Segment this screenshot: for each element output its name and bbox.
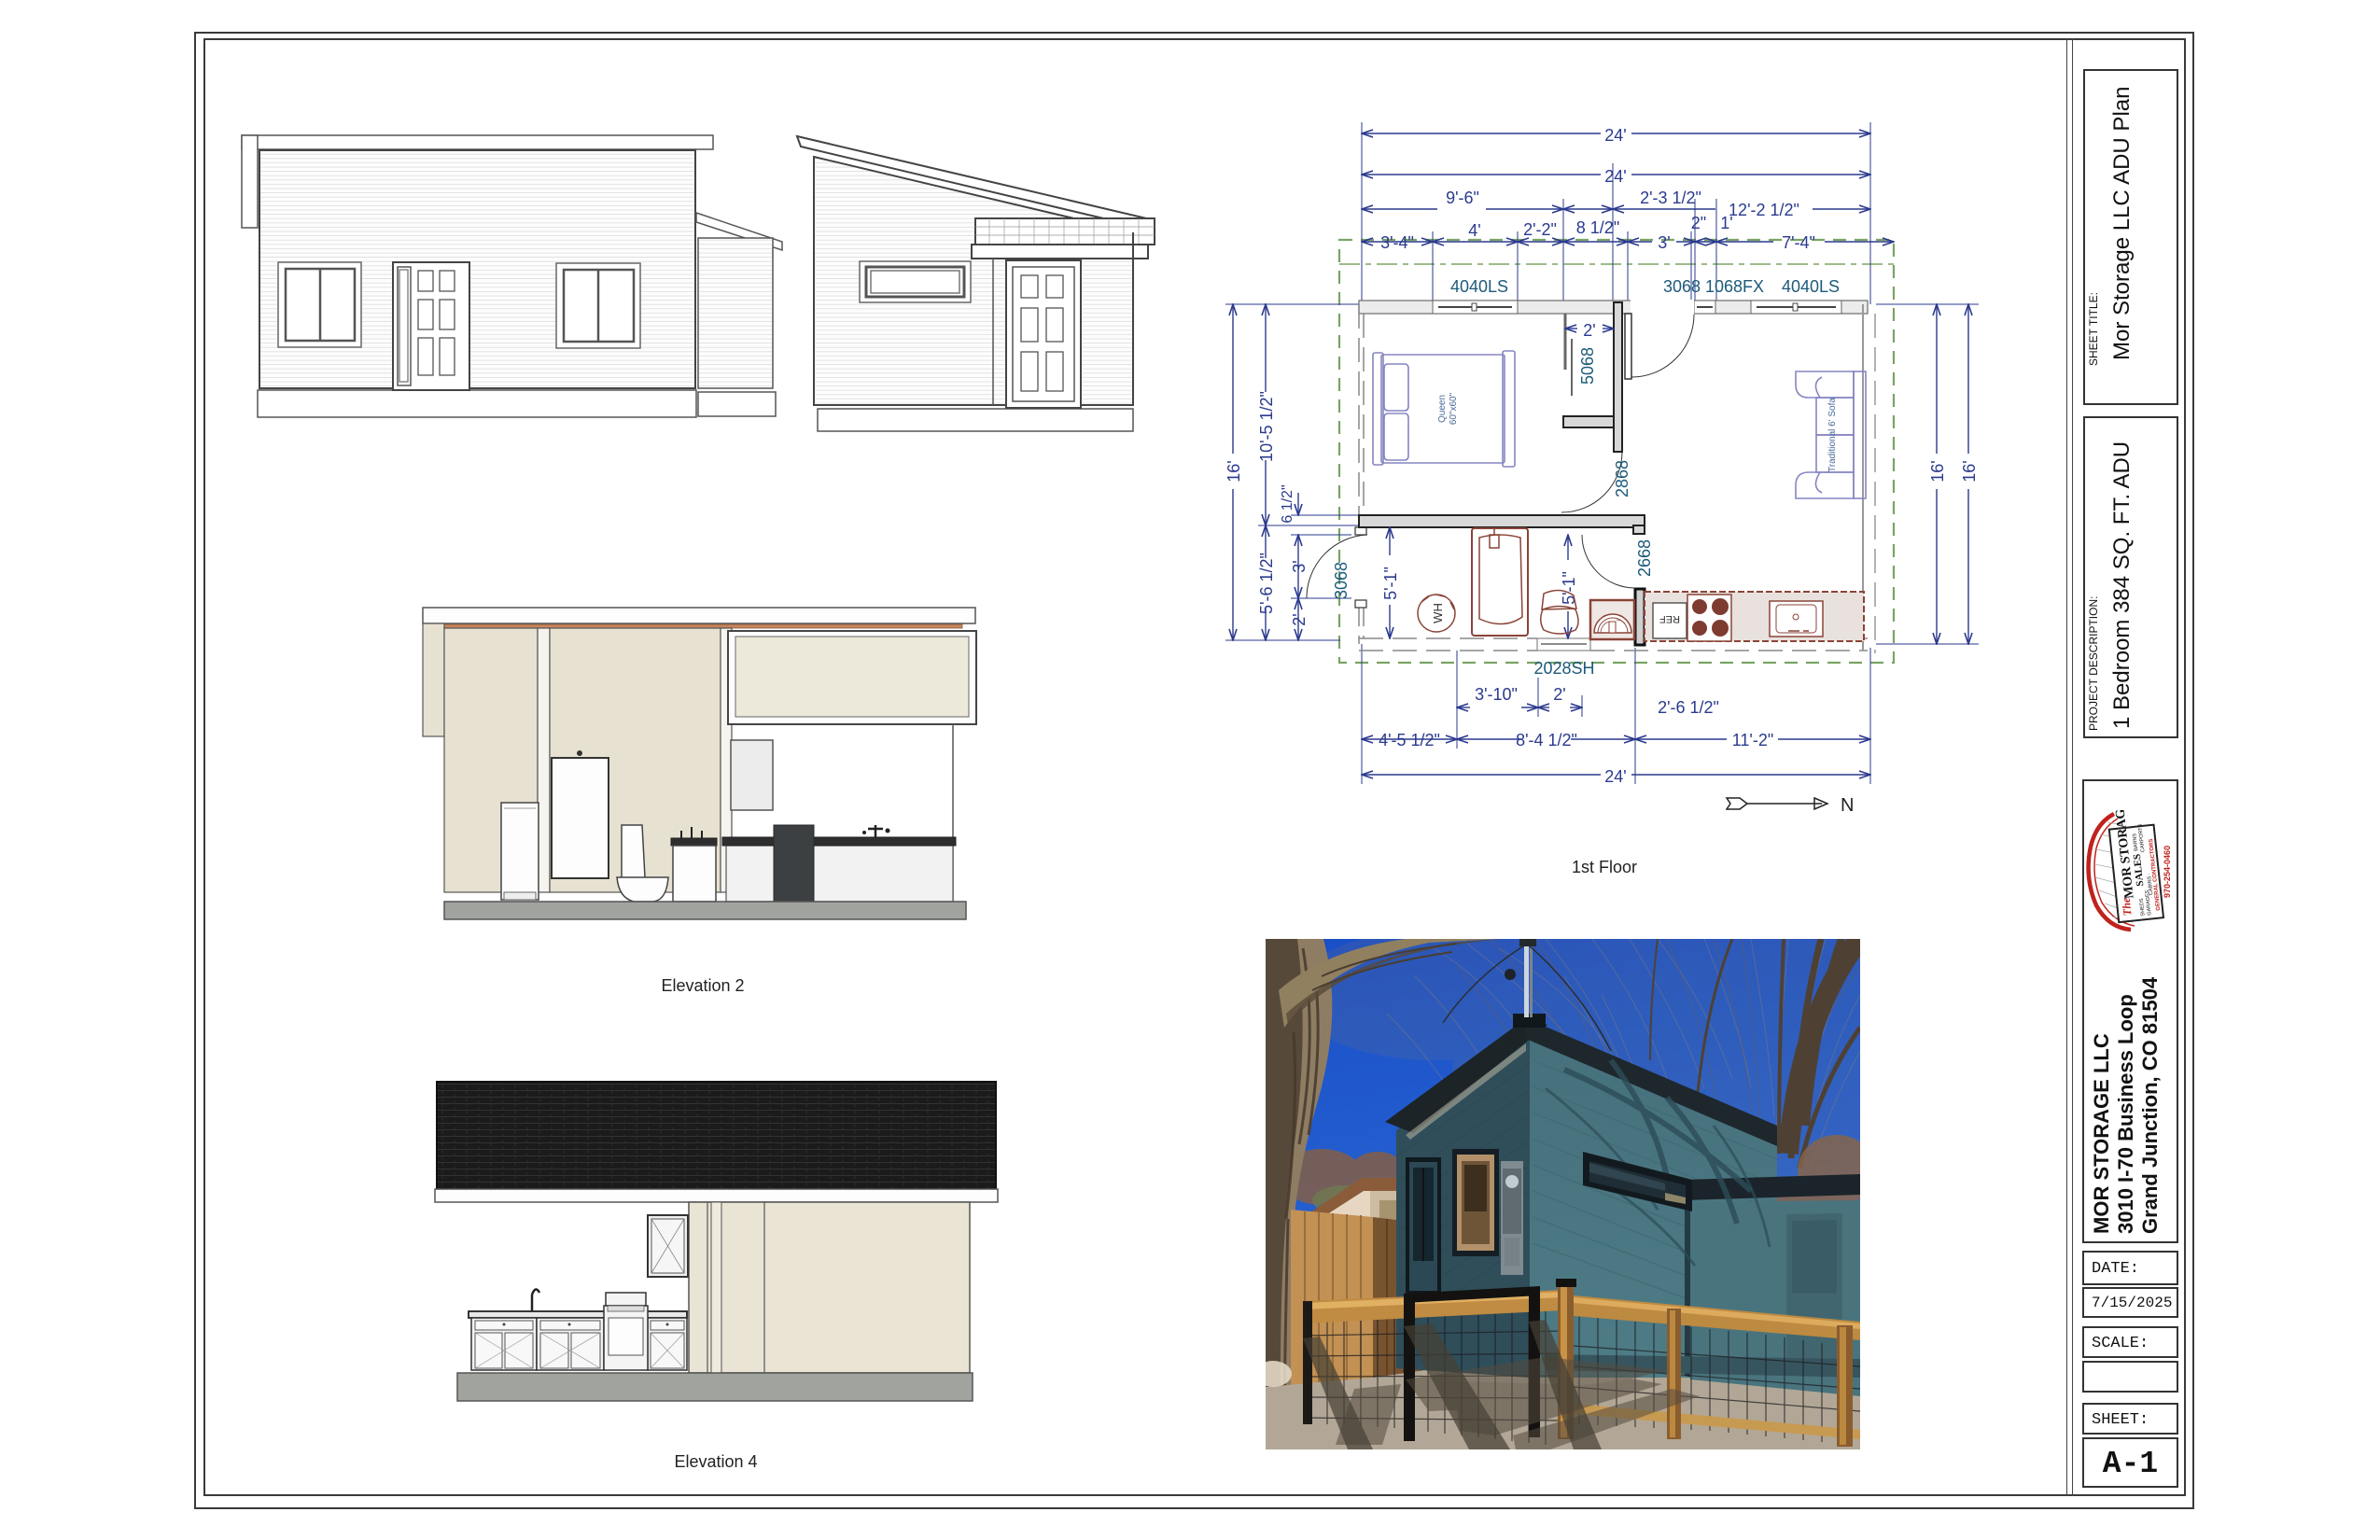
svg-text:2668: 2668 bbox=[1635, 539, 1654, 577]
svg-text:7'-4": 7'-4" bbox=[1782, 233, 1815, 252]
svg-text:5'-1": 5'-1" bbox=[1381, 567, 1400, 600]
svg-text:6 1/2": 6 1/2" bbox=[1280, 484, 1295, 523]
svg-text:Elevation 2: Elevation 2 bbox=[661, 976, 744, 995]
svg-text:24': 24' bbox=[1604, 126, 1626, 145]
svg-text:3068 1068FX: 3068 1068FX bbox=[1663, 277, 1764, 296]
svg-text:Traditional 6' Sofa: Traditional 6' Sofa bbox=[1827, 398, 1838, 472]
svg-text:16': 16' bbox=[1225, 460, 1243, 482]
svg-text:5068: 5068 bbox=[1578, 347, 1597, 385]
svg-text:11'-2": 11'-2" bbox=[1732, 731, 1774, 749]
svg-text:10'-5 1/2": 10'-5 1/2" bbox=[1257, 391, 1276, 462]
svg-text:16': 16' bbox=[1960, 460, 1979, 482]
svg-text:4040LS: 4040LS bbox=[1450, 277, 1508, 296]
svg-text:4': 4' bbox=[1468, 221, 1480, 240]
svg-text:1st Floor: 1st Floor bbox=[1572, 858, 1637, 876]
svg-text:1': 1' bbox=[1720, 214, 1732, 232]
svg-text:3'-10": 3'-10" bbox=[1475, 685, 1518, 704]
svg-text:3'-4": 3'-4" bbox=[1380, 233, 1414, 252]
svg-text:8'-4 1/2": 8'-4 1/2" bbox=[1516, 731, 1577, 749]
svg-text:2": 2" bbox=[1691, 214, 1706, 232]
svg-text:24': 24' bbox=[1604, 767, 1626, 786]
svg-text:9'-6": 9'-6" bbox=[1446, 189, 1479, 207]
svg-text:12'-2 1/2": 12'-2 1/2" bbox=[1729, 201, 1799, 219]
svg-text:Elevation 4: Elevation 4 bbox=[674, 1452, 757, 1471]
svg-text:24': 24' bbox=[1604, 167, 1626, 186]
svg-text:2': 2' bbox=[1290, 613, 1309, 625]
svg-text:2': 2' bbox=[1553, 685, 1565, 704]
svg-text:5'-1": 5'-1" bbox=[1560, 571, 1578, 605]
svg-text:WH: WH bbox=[1431, 603, 1445, 623]
svg-text:60"x60": 60"x60" bbox=[1449, 392, 1459, 425]
svg-text:4'-5 1/2": 4'-5 1/2" bbox=[1379, 731, 1440, 749]
svg-text:2': 2' bbox=[1583, 321, 1595, 340]
svg-text:Queen: Queen bbox=[1437, 395, 1448, 423]
svg-text:16': 16' bbox=[1928, 460, 1947, 482]
svg-text:5'-6 1/2": 5'-6 1/2" bbox=[1257, 553, 1276, 614]
svg-text:8 1/2": 8 1/2" bbox=[1576, 218, 1619, 237]
svg-text:3': 3' bbox=[1290, 560, 1309, 572]
svg-text:REF: REF bbox=[1659, 613, 1680, 624]
svg-text:3068: 3068 bbox=[1332, 562, 1351, 599]
svg-text:3': 3' bbox=[1658, 233, 1670, 252]
svg-text:N: N bbox=[1841, 795, 1854, 816]
svg-text:2'-6 1/2": 2'-6 1/2" bbox=[1658, 698, 1719, 717]
svg-text:2028SH: 2028SH bbox=[1533, 659, 1594, 678]
svg-text:970-254-0460: 970-254-0460 bbox=[2163, 846, 2172, 898]
svg-text:4040LS: 4040LS bbox=[1782, 277, 1840, 296]
svg-text:2868: 2868 bbox=[1613, 460, 1631, 497]
svg-text:2'-2": 2'-2" bbox=[1523, 220, 1557, 239]
svg-text:2'-3 1/2": 2'-3 1/2" bbox=[1640, 189, 1701, 207]
